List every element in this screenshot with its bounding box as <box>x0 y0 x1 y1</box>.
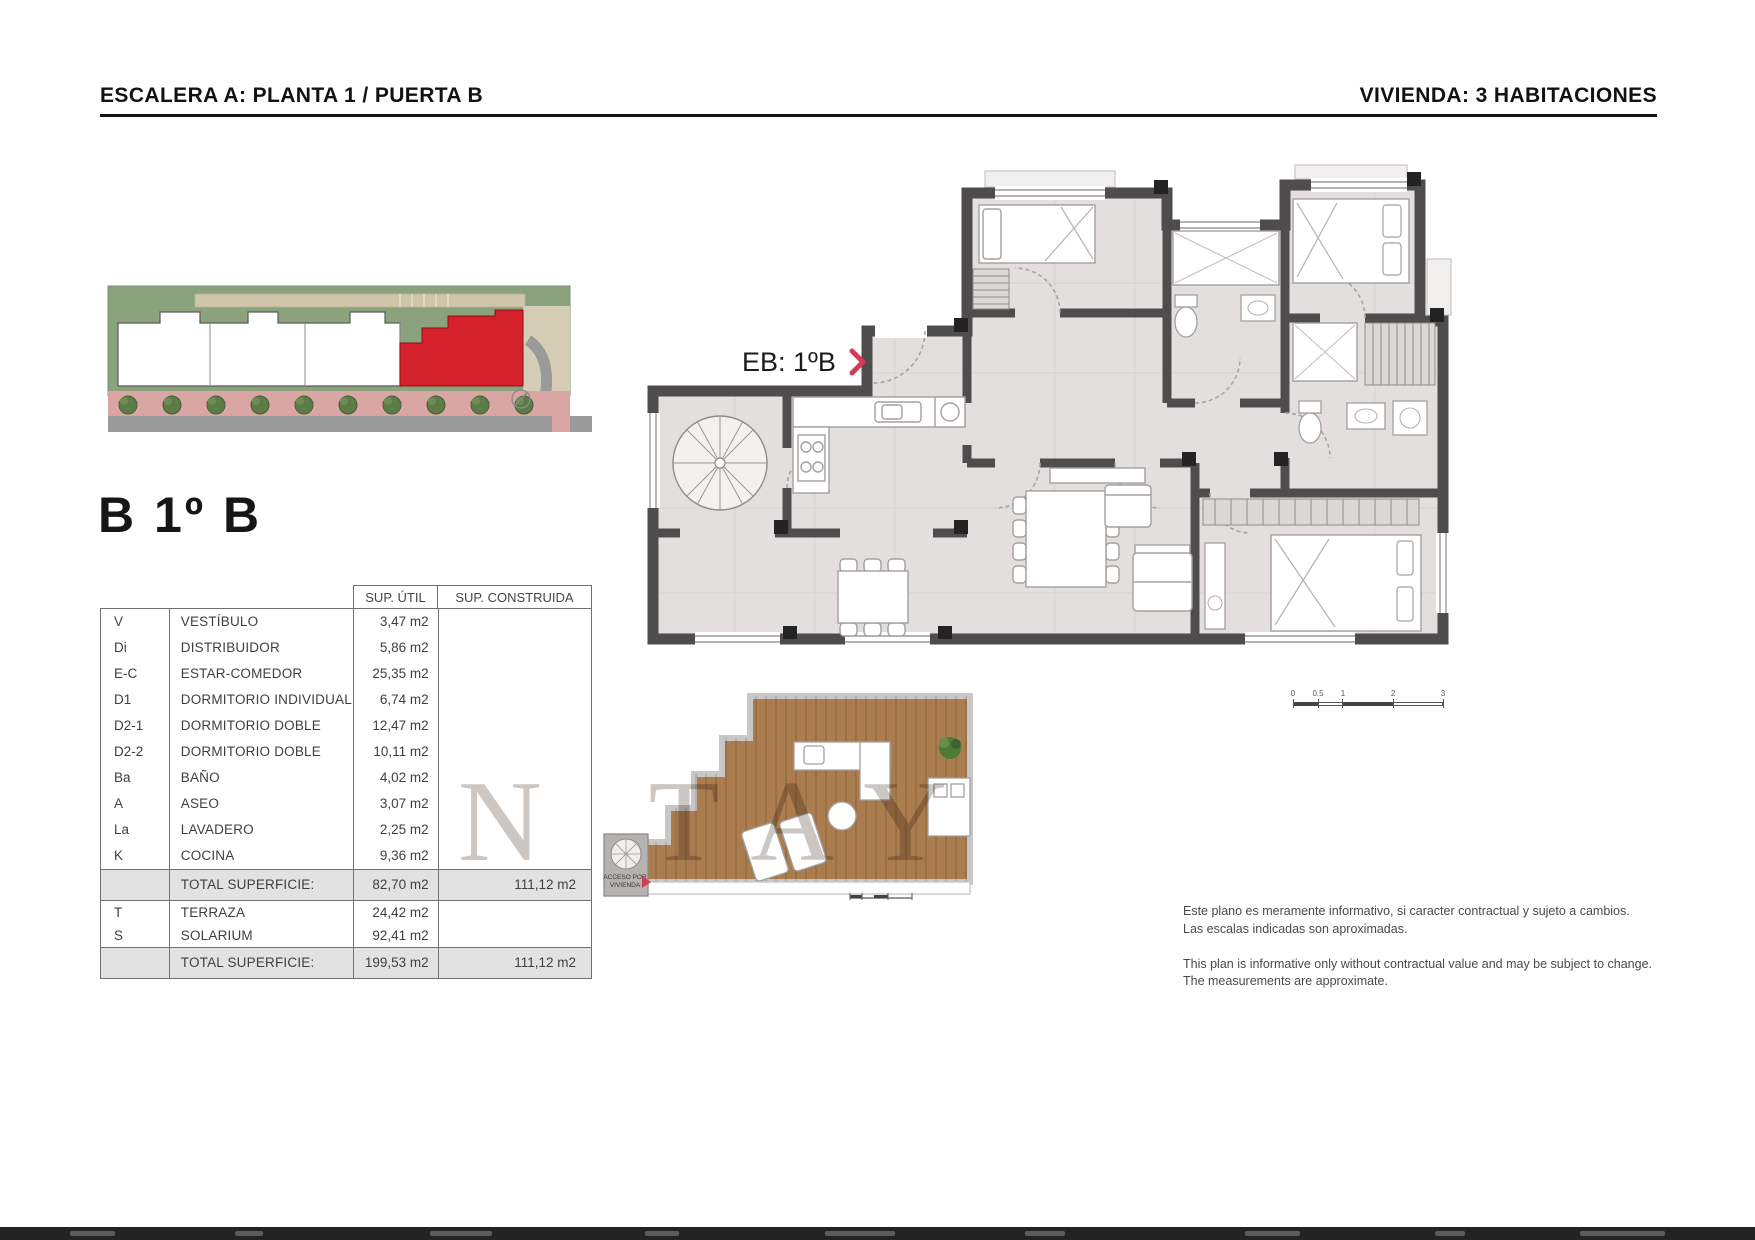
room-sup-construida <box>438 739 591 765</box>
closet-3 <box>1203 499 1419 525</box>
table-row: T TERRAZA 24,42 m2 <box>101 901 591 924</box>
media-progress-bar[interactable] <box>0 1227 1755 1240</box>
terrace-access: ACCESO POR VIVIENDA <box>603 834 651 896</box>
subtotal-row: TOTAL SUPERFICIE: 82,70 m2 111,12 m2 <box>101 869 591 901</box>
room-name: VESTÍBULO <box>169 609 353 635</box>
room-sup-construida <box>438 687 591 713</box>
table-row: Di DISTRIBUIDOR 5,86 m2 <box>101 635 591 661</box>
spiral-staircase <box>673 416 767 510</box>
room-code: S <box>101 924 169 947</box>
room-name: DORMITORIO INDIVIDUAL <box>169 687 353 713</box>
room-sup-util: 3,07 m2 <box>353 791 438 817</box>
subtotal-construida: 111,12 m2 <box>438 870 591 900</box>
toilet <box>1175 307 1197 337</box>
room-name: TERRAZA <box>169 901 353 924</box>
room-sup-construida <box>438 817 591 843</box>
scale-tick <box>1443 699 1444 708</box>
total-util: 199,53 m2 <box>353 948 438 978</box>
table-row: E-C ESTAR-COMEDOR 25,35 m2 <box>101 661 591 687</box>
table-row: V VESTÍBULO 3,47 m2 <box>101 609 591 635</box>
access-label-line2: VIVIENDA <box>610 882 641 889</box>
room-sup-construida <box>438 843 591 869</box>
total-row: TOTAL SUPERFICIE: 199,53 m2 111,12 m2 <box>101 947 591 978</box>
closet-2 <box>1365 323 1435 385</box>
washer-2 <box>1393 401 1427 435</box>
room-code: K <box>101 843 169 869</box>
table-row: A ASEO 3,07 m2 <box>101 791 591 817</box>
areas-table-header: SUP. ÚTIL SUP. CONSTRUIDA <box>353 585 592 609</box>
scale-tick-label: 1 <box>1341 689 1345 698</box>
bedroom-double-1 <box>1293 199 1409 283</box>
room-code: Ba <box>101 765 169 791</box>
entry-arrow-icon[interactable] <box>848 346 868 378</box>
room-name: BAÑO <box>169 765 353 791</box>
scale-bar: 00.5123 <box>1293 690 1443 712</box>
washer <box>935 397 965 427</box>
room-sup-construida <box>438 635 591 661</box>
dining-table-6 <box>838 559 908 636</box>
round-table <box>828 802 856 830</box>
header-rule <box>100 114 1657 117</box>
room-sup-construida <box>438 901 591 924</box>
disclaimer-es: Este plano es meramente informativo, si … <box>1183 903 1678 939</box>
room-sup-util: 12,47 m2 <box>353 713 438 739</box>
toilet-2 <box>1299 413 1321 443</box>
room-code: D1 <box>101 687 169 713</box>
sink-2 <box>1347 403 1385 429</box>
scale-tick-label: 2 <box>1391 689 1395 698</box>
dresser <box>1205 543 1225 629</box>
room-name: DISTRIBUIDOR <box>169 635 353 661</box>
room-sup-util: 24,42 m2 <box>353 901 438 924</box>
room-code: Di <box>101 635 169 661</box>
room-code: D2-2 <box>101 739 169 765</box>
room-code: T <box>101 901 169 924</box>
page-title-right: VIVIENDA: 3 HABITACIONES <box>1360 84 1657 108</box>
site-crossing <box>552 396 570 432</box>
room-name: DORMITORIO DOBLE <box>169 739 353 765</box>
sink <box>1241 295 1275 321</box>
room-sup-util: 10,11 m2 <box>353 739 438 765</box>
table-row: D2-1 DORMITORIO DOBLE 12,47 m2 <box>101 713 591 739</box>
table-row: Ba BAÑO 4,02 m2 <box>101 765 591 791</box>
table-row: K COCINA 9,36 m2 <box>101 843 591 869</box>
solarium-plan: ACCESO POR VIVIENDA <box>598 686 980 904</box>
room-sup-util: 4,02 m2 <box>353 765 438 791</box>
page-title-left: ESCALERA A: PLANTA 1 / PUERTA B <box>100 84 483 108</box>
table-row: S SOLARIUM 92,41 m2 <box>101 924 591 947</box>
room-code: D2-1 <box>101 713 169 739</box>
terrace-walkway <box>638 882 970 894</box>
dining-table-8 <box>1013 491 1119 587</box>
subtotal-util: 82,70 m2 <box>353 870 438 900</box>
scale-tick <box>1293 699 1294 708</box>
room-name: ESTAR-COMEDOR <box>169 661 353 687</box>
room-sup-util: 5,86 m2 <box>353 635 438 661</box>
armchair <box>1105 485 1151 527</box>
column-header-sup-construida: SUP. CONSTRUIDA <box>438 585 592 609</box>
total-construida: 111,12 m2 <box>438 948 591 978</box>
room-sup-util: 9,36 m2 <box>353 843 438 869</box>
areas-table: SUP. ÚTIL SUP. CONSTRUIDA V VESTÍBULO 3,… <box>100 585 592 979</box>
room-code: E-C <box>101 661 169 687</box>
table-row: D1 DORMITORIO INDIVIDUAL 6,74 m2 <box>101 687 591 713</box>
room-code: A <box>101 791 169 817</box>
stove <box>798 435 825 481</box>
table-row: La LAVADERO 2,25 m2 <box>101 817 591 843</box>
site-road <box>108 416 592 432</box>
room-sup-construida <box>438 609 591 635</box>
total-label: TOTAL SUPERFICIE: <box>169 948 353 978</box>
room-sup-construida <box>438 924 591 947</box>
room-code: V <box>101 609 169 635</box>
disclaimer-en: This plan is informative only without co… <box>1183 956 1678 992</box>
room-sup-construida <box>438 791 591 817</box>
disclaimer: Este plano es meramente informativo, si … <box>1183 903 1678 1008</box>
room-name: DORMITORIO DOBLE <box>169 713 353 739</box>
sideboard <box>1050 468 1145 483</box>
unit-title: B 1º B <box>98 486 262 544</box>
plan-entry-label: EB: 1ºB <box>742 346 868 378</box>
scale-tick-label: 3 <box>1441 689 1445 698</box>
access-label-line1: ACCESO POR <box>603 874 647 881</box>
table-row: D2-2 DORMITORIO DOBLE 10,11 m2 <box>101 739 591 765</box>
scale-tick <box>1342 699 1343 708</box>
room-code: La <box>101 817 169 843</box>
column-header-sup-util: SUP. ÚTIL <box>353 585 438 609</box>
room-sup-util: 3,47 m2 <box>353 609 438 635</box>
scale-tick <box>1393 699 1394 708</box>
scale-tick-label: 0.5 <box>1312 689 1323 698</box>
room-sup-util: 6,74 m2 <box>353 687 438 713</box>
room-rows: V VESTÍBULO 3,47 m2 Di DISTRIBUIDOR 5,86… <box>101 609 591 869</box>
room-name: COCINA <box>169 843 353 869</box>
site-walkway <box>195 294 525 307</box>
plant <box>939 737 961 759</box>
site-building <box>118 312 400 386</box>
room-sup-util: 92,41 m2 <box>353 924 438 947</box>
room-name: SOLARIUM <box>169 924 353 947</box>
scale-tick-label: 0 <box>1291 689 1295 698</box>
room-name: LAVADERO <box>169 817 353 843</box>
room-sup-util: 25,35 m2 <box>353 661 438 687</box>
room-name: ASEO <box>169 791 353 817</box>
room-sup-construida <box>438 661 591 687</box>
compass-icon <box>508 386 534 412</box>
subtotal-label: TOTAL SUPERFICIE: <box>169 870 353 900</box>
closet <box>973 269 1009 309</box>
room-sup-util: 2,25 m2 <box>353 817 438 843</box>
room-sup-construida <box>438 713 591 739</box>
toilet-tank <box>1175 295 1197 307</box>
plan-entry-text: EB: 1ºB <box>742 347 836 378</box>
scale-tick <box>1318 699 1319 708</box>
room-sup-construida <box>438 765 591 791</box>
outdoor-rows: T TERRAZA 24,42 m2 S SOLARIUM 92,41 m2 <box>101 901 591 947</box>
main-floor-plan <box>635 163 1455 655</box>
floor-plan-sheet: ESCALERA A: PLANTA 1 / PUERTA B VIVIENDA… <box>0 0 1755 1240</box>
